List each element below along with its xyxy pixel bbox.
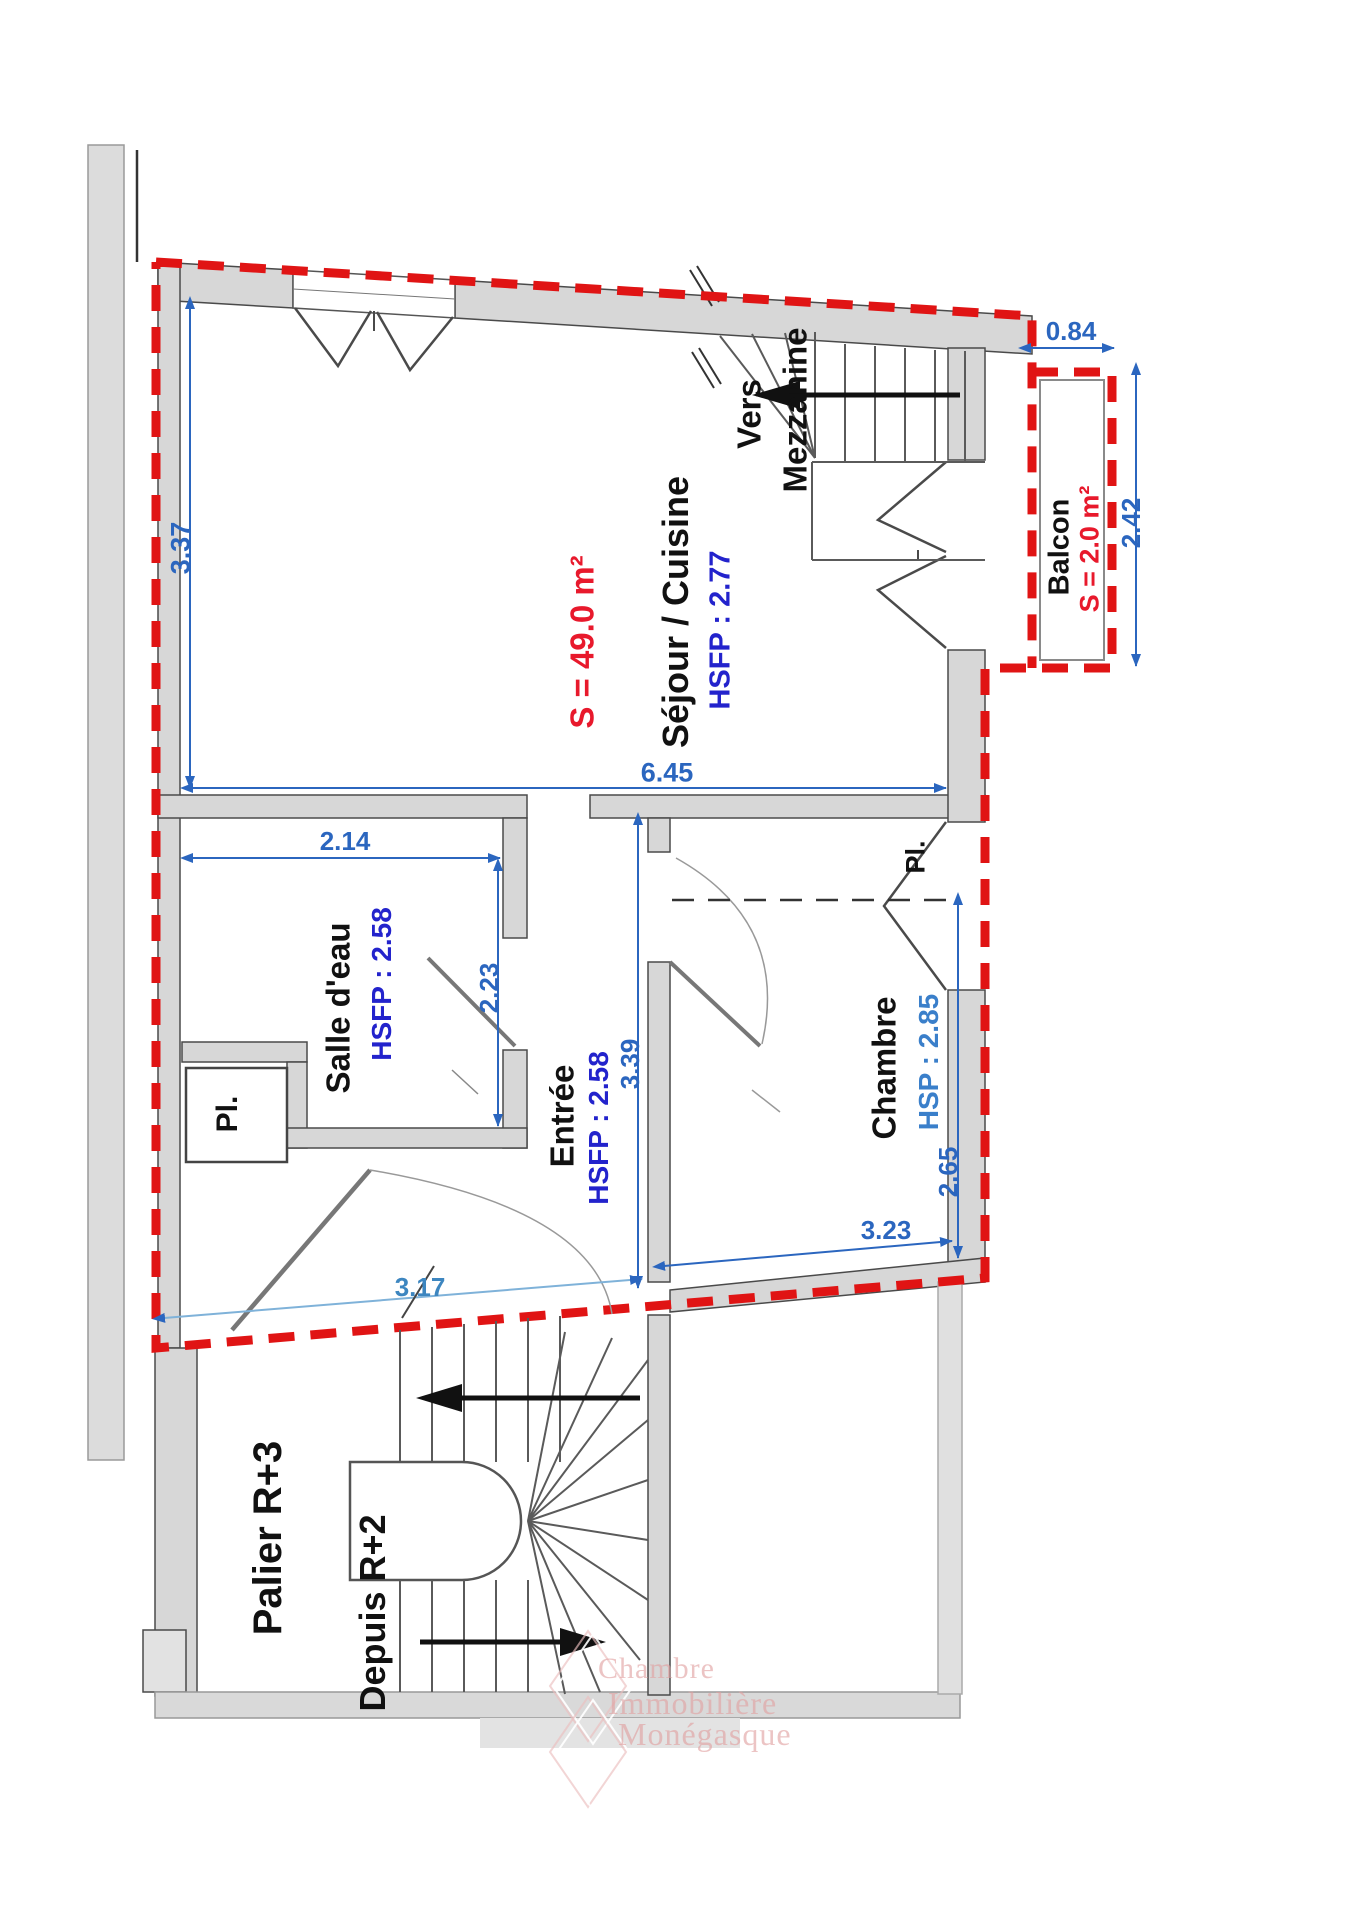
room-label-sejour: Séjour / Cuisine — [658, 476, 694, 748]
stairs-down-arrow-icon — [420, 1628, 606, 1656]
stairs-depuis-label: Depuis R+2 — [355, 1514, 391, 1711]
floor-plan-page: S = 49.0 m² Séjour / Cuisine HSFP : 2.77… — [0, 0, 1357, 1920]
main-staircase — [350, 1316, 648, 1694]
dim-salle-eau-width: 2.14 — [320, 828, 371, 854]
dim-sejour-depth: 3.37 — [168, 522, 195, 575]
watermark-line3: Monégasque — [618, 1716, 792, 1753]
balcony-french-door — [878, 462, 946, 648]
dim-entree-width: 3.17 — [395, 1274, 446, 1300]
stairs-mezzanine-label: Mezzanine — [779, 327, 812, 492]
room-area-sejour: S = 49.0 m² — [566, 555, 599, 728]
floor-plan-drawing — [0, 0, 1357, 1920]
chambre-door — [670, 858, 780, 1112]
room-ceiling-chambre: HSP : 2.85 — [915, 994, 943, 1130]
room-label-entree: Entrée — [546, 1065, 579, 1168]
closet-label-salle-eau: Pl. — [213, 1096, 243, 1133]
room-label-balcon: Balcon — [1046, 499, 1075, 596]
room-label-chambre: Chambre — [868, 996, 901, 1139]
dim-entree-depth: 3.39 — [617, 1039, 643, 1090]
room-area-balcon: S = 2.0 m² — [1077, 486, 1104, 613]
sejour-window — [293, 270, 455, 370]
entrance-door — [232, 1170, 612, 1330]
dim-salle-eau-depth: 2.23 — [476, 963, 502, 1014]
room-ceiling-entree: HSFP : 2.58 — [585, 1051, 613, 1205]
watermark-line1: Chambre — [598, 1652, 715, 1686]
closet-label-chambre: Pl. — [903, 840, 930, 873]
room-ceiling-sejour: HSFP : 2.77 — [707, 550, 736, 709]
room-ceiling-salle-eau: HSFP : 2.58 — [368, 907, 396, 1061]
stairs-vers-label: Vers — [733, 379, 766, 449]
dim-balcon-depth: 2.42 — [1118, 498, 1144, 549]
dim-sejour-width: 6.45 — [641, 760, 694, 787]
dim-chambre-right-depth: 2.65 — [935, 1147, 961, 1198]
dim-chambre-width: 3.23 — [861, 1217, 912, 1243]
room-label-salle-eau: Salle d'eau — [322, 922, 355, 1093]
neighbour-wall-strip — [88, 145, 137, 1460]
stairs-palier-label: Palier R+3 — [248, 1441, 288, 1636]
dim-balcon-width: 0.84 — [1046, 318, 1097, 344]
